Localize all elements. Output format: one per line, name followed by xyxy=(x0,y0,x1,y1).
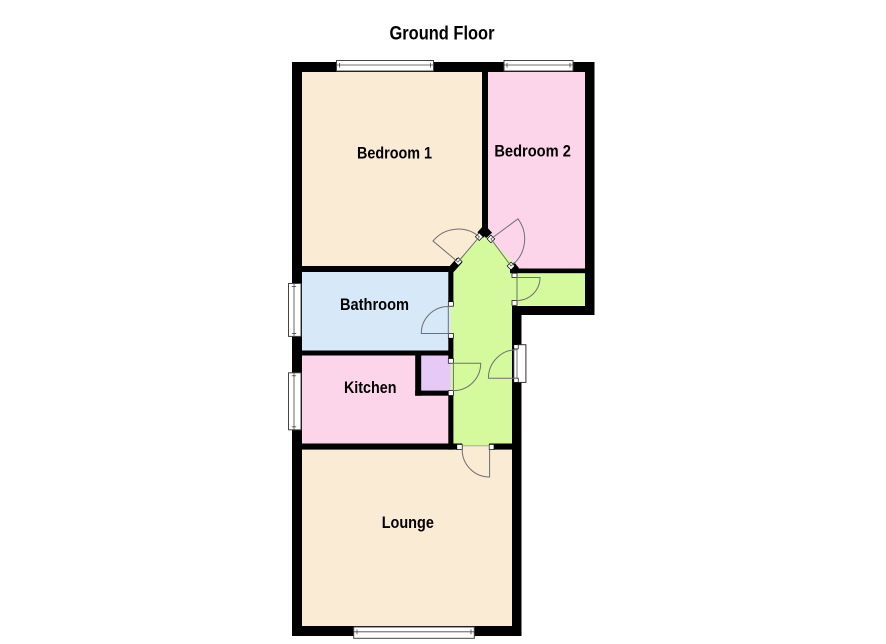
svg-text:Ground Floor: Ground Floor xyxy=(390,24,496,45)
svg-text:Bedroom 2: Bedroom 2 xyxy=(494,142,571,161)
svg-text:Kitchen: Kitchen xyxy=(344,378,397,397)
svg-text:Lounge: Lounge xyxy=(382,513,434,532)
svg-text:Bedroom 1: Bedroom 1 xyxy=(357,143,432,162)
svg-text:Bathroom: Bathroom xyxy=(340,295,409,314)
